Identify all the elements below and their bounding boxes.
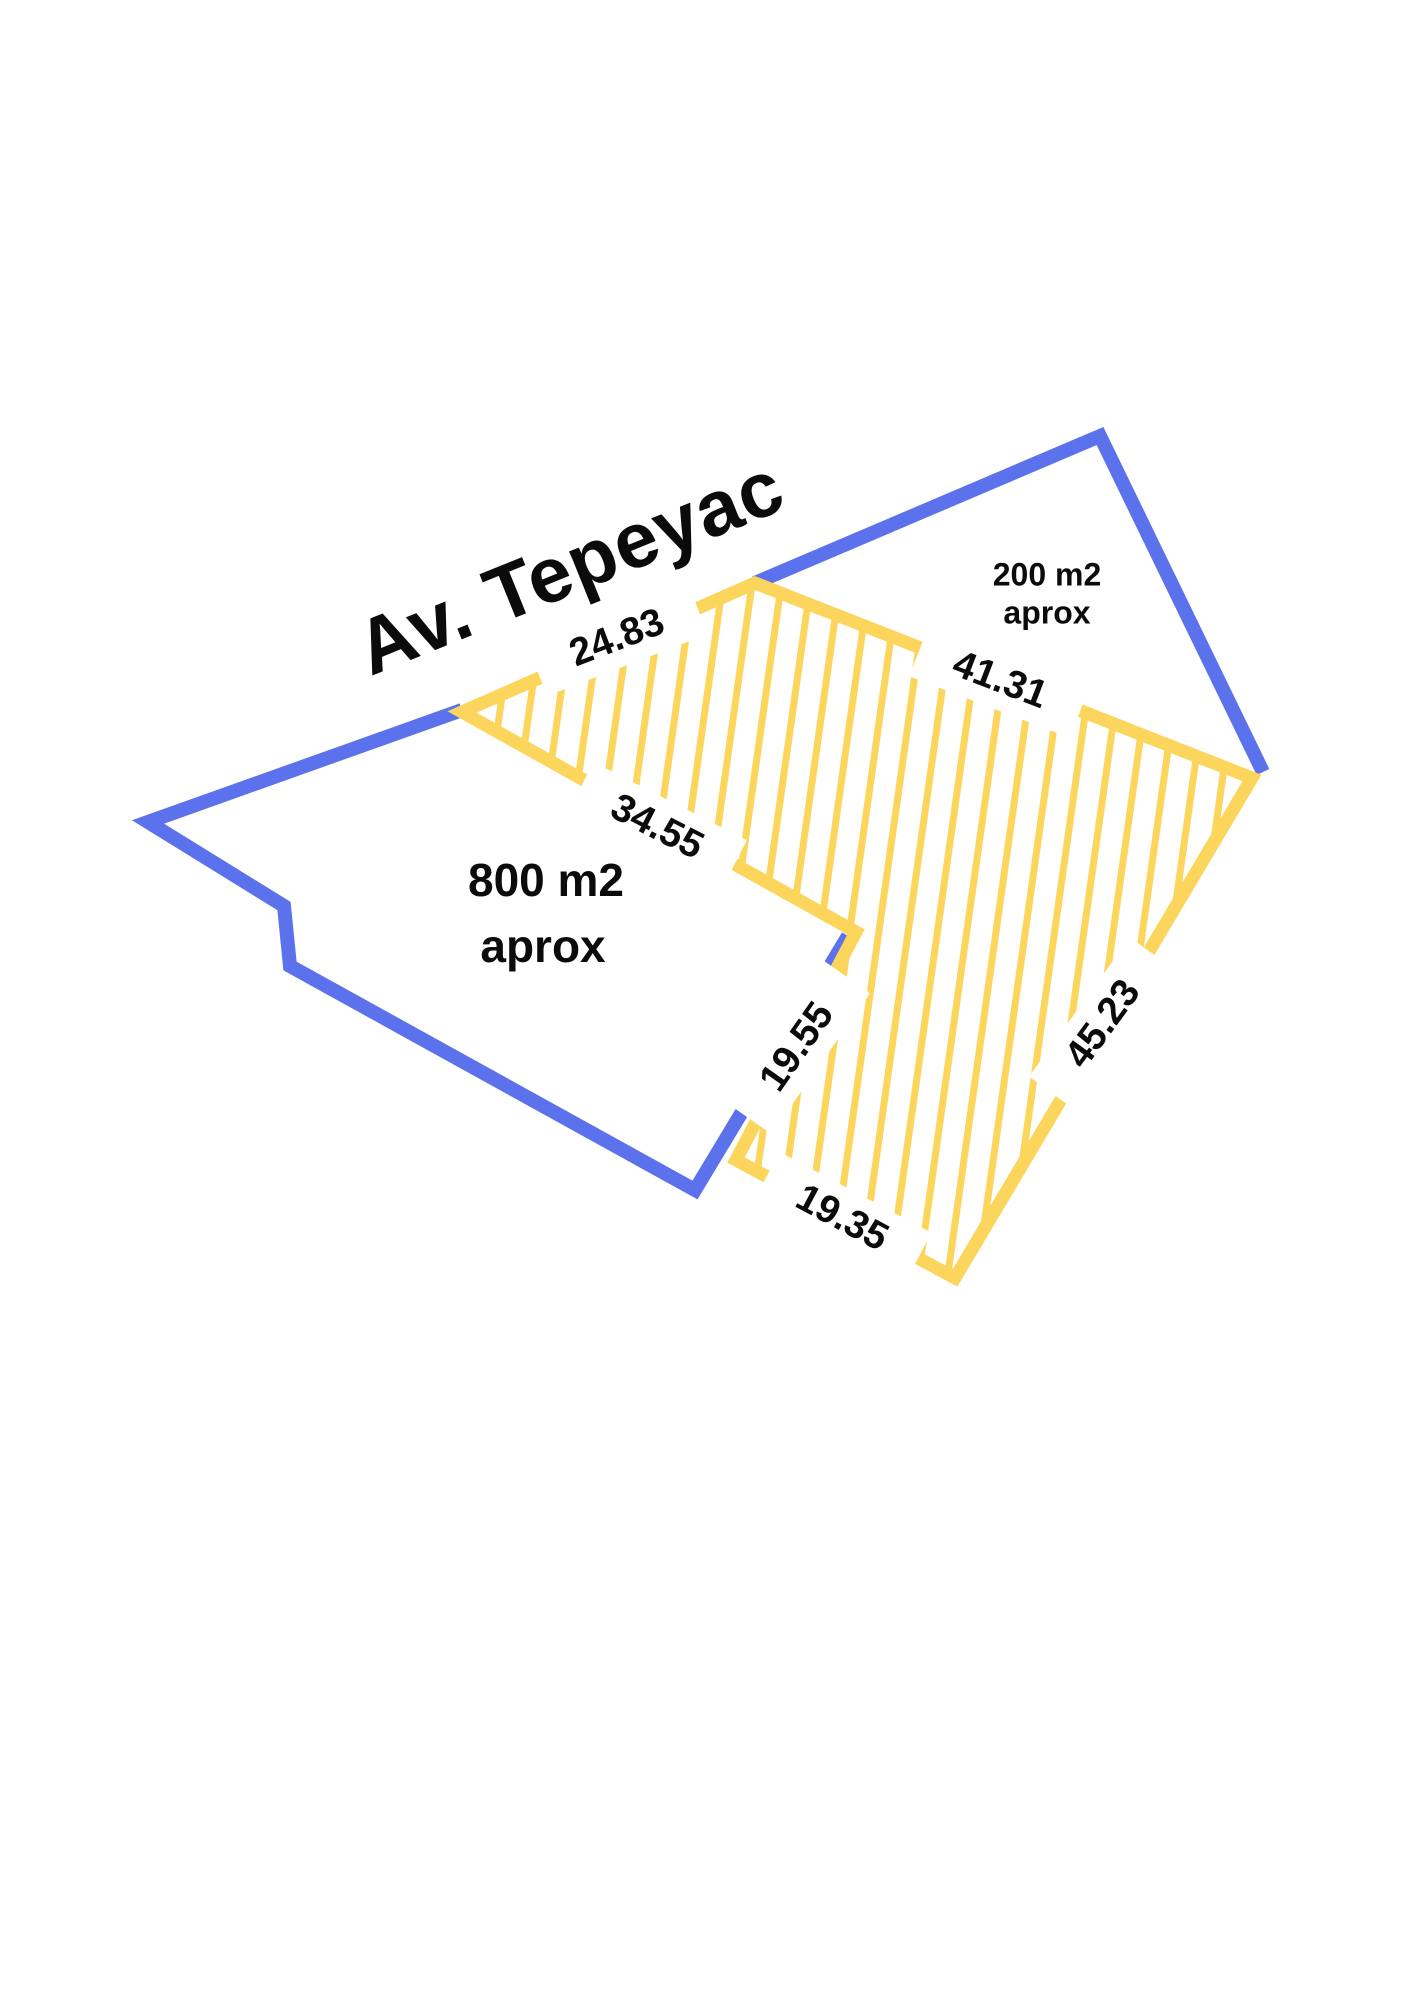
left-parcel-area-label: 800 m2 — [468, 853, 624, 907]
right-parcel-area-label: 200 m2 — [993, 557, 1102, 594]
left-parcel-area-note: aprox — [480, 919, 605, 973]
parcel-map-drawing — [0, 0, 1414, 2000]
site-plan-canvas: Av. Tepeyac 800 m2 aprox 200 m2 aprox 24… — [0, 0, 1414, 2000]
right-parcel-area-note: aprox — [1003, 595, 1090, 632]
